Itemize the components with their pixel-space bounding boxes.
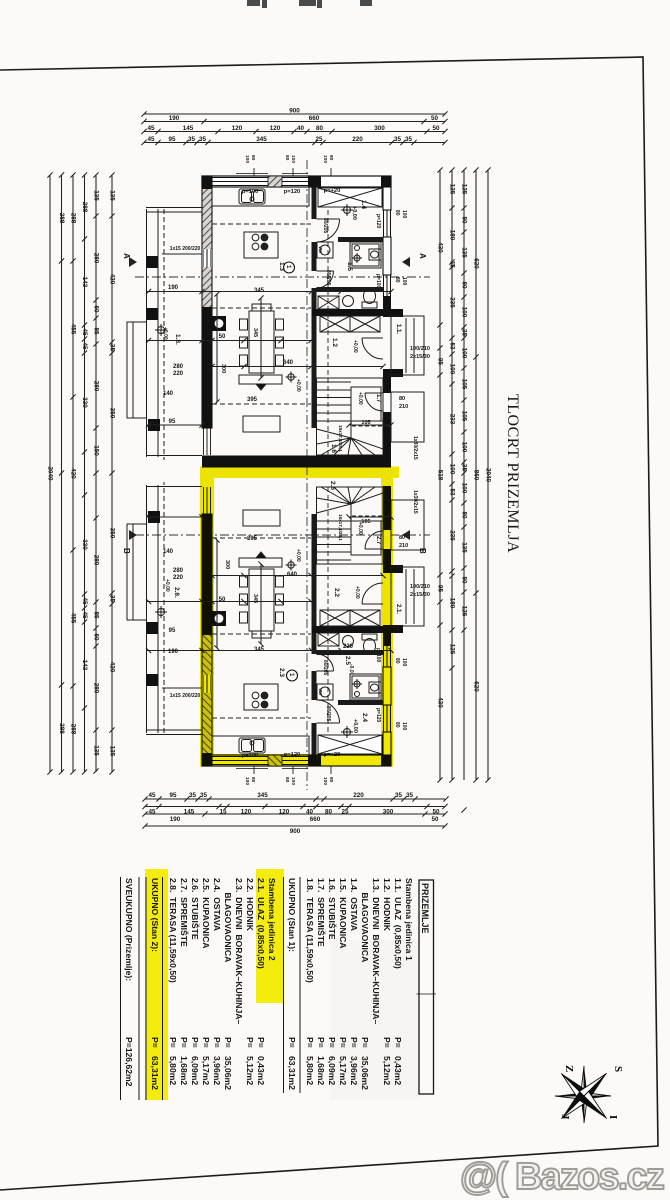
svg-text:VM: VM [318,688,323,695]
svg-text:80/205: 80/205 [325,706,331,722]
svg-text:100: 100 [322,777,328,785]
svg-text:2.4. OSTAVA: 2.4. OSTAVA [212,878,222,931]
svg-text:P=: P= [382,1037,392,1048]
svg-text:80: 80 [394,722,400,728]
svg-text:p=120: p=120 [375,708,381,723]
svg-text:+0,00: +0,00 [352,340,358,353]
svg-text:280: 280 [93,253,100,264]
svg-text:45: 45 [81,597,88,605]
svg-text:1: 1 [285,265,292,269]
svg-text:35: 35 [188,136,196,143]
svg-text:190: 190 [168,285,179,291]
svg-text:p=120: p=120 [284,189,301,195]
svg-text:P=: P= [338,1037,348,1048]
svg-text:430: 430 [437,697,444,708]
svg-text:80: 80 [399,396,405,402]
svg-text:125: 125 [449,644,456,655]
svg-text:35: 35 [199,136,207,143]
svg-text:2.3: 2.3 [278,668,285,677]
svg-text:80: 80 [284,155,290,161]
svg-text:80: 80 [394,658,400,664]
svg-text:2.2. HODNIK: 2.2. HODNIK [245,878,255,932]
svg-text:+0,00: +0,00 [295,379,301,392]
svg-text:518: 518 [437,470,444,481]
svg-text:80: 80 [316,125,324,132]
svg-text:220: 220 [173,575,184,581]
svg-text:80: 80 [394,277,400,283]
svg-text:1.5: 1.5 [346,262,353,271]
svg-text:p=100: p=100 [242,753,259,759]
svg-text:P=: P= [327,1037,337,1048]
svg-text:P=: P= [305,1037,315,1048]
svg-text:SVEUKUPNO (Prizemlje):: SVEUKUPNO (Prizemlje): [124,878,134,981]
svg-text:35: 35 [406,792,414,799]
svg-text:2.6: 2.6 [329,481,336,490]
svg-text:80: 80 [328,155,334,161]
svg-text:455: 455 [70,613,77,624]
svg-text:p=100: p=100 [375,648,381,663]
svg-text:p=120: p=120 [284,752,301,758]
svg-text:900: 900 [290,828,301,835]
svg-text:P=: P= [393,1037,403,1048]
svg-text:S: S [612,1066,624,1072]
svg-text:45: 45 [81,611,88,619]
svg-text:100: 100 [401,277,407,286]
svg-text:860: 860 [473,470,480,481]
svg-text:P=: P= [150,1037,160,1048]
svg-text:288: 288 [58,723,65,734]
svg-text:1x30/2x15: 1x30/2x15 [412,490,418,514]
svg-text:80: 80 [461,281,468,289]
svg-text:1.1. ULAZ (0,85x0,50): 1.1. ULAZ (0,85x0,50) [393,878,403,969]
svg-text:135: 135 [93,190,100,201]
svg-text:1.6. STUBIŠTE: 1.6. STUBIŠTE [327,878,338,940]
svg-text:80: 80 [461,511,468,519]
svg-text:2.1.: 2.1. [395,604,401,614]
svg-text:80: 80 [328,777,334,783]
svg-text:Z: Z [563,1065,575,1072]
svg-text:280: 280 [93,555,100,566]
svg-text:395: 395 [247,397,258,403]
svg-text:235: 235 [449,530,456,541]
svg-text:95: 95 [437,585,444,593]
svg-text:100: 100 [449,464,456,475]
svg-text:280: 280 [173,568,184,574]
svg-text:P=: P= [179,1037,189,1048]
svg-text:100/210: 100/210 [410,346,430,352]
svg-text:100: 100 [401,658,407,667]
svg-text:50: 50 [431,816,439,823]
svg-text:180: 180 [449,230,456,241]
svg-text:190: 190 [170,816,181,823]
svg-text:105: 105 [361,420,370,426]
svg-text:53: 53 [449,488,456,496]
svg-text:P=: P= [168,1037,178,1048]
svg-text:2.7. SPREMIŠTE: 2.7. SPREMIŠTE [179,878,190,947]
svg-text:140: 140 [163,391,174,397]
svg-text:5,17m2: 5,17m2 [338,1056,348,1085]
svg-text:143: 143 [81,277,88,288]
svg-text:p=120: p=120 [375,214,381,229]
svg-text:420: 420 [109,662,116,673]
svg-text:5,17m2: 5,17m2 [201,1056,211,1085]
svg-text:1x30/2x15: 1x30/2x15 [412,436,418,460]
svg-text:2.4: 2.4 [361,713,368,722]
svg-text:BLAGOVAONICA: BLAGOVAONICA [360,878,370,962]
svg-text:J: J [559,1114,571,1120]
svg-text:135: 135 [109,746,116,757]
svg-text:395: 395 [247,536,258,542]
svg-text:420: 420 [70,468,77,479]
svg-text:35: 35 [395,792,403,799]
svg-text:1.7. SPREMIŠTE: 1.7. SPREMIŠTE [316,878,327,947]
svg-text:35: 35 [461,464,468,472]
svg-text:p=+20: p=+20 [324,188,341,194]
svg-text:+0,00: +0,00 [164,579,170,592]
svg-text:Stambena jedinica 2: Stambena jedinica 2 [267,878,277,961]
svg-text:345: 345 [254,647,265,653]
svg-text:105: 105 [461,379,468,390]
svg-text:430: 430 [437,242,444,253]
svg-text:80: 80 [394,210,400,216]
svg-text:125: 125 [449,184,456,195]
svg-text:660: 660 [310,816,321,823]
svg-text:P=: P= [349,1037,359,1048]
svg-text:VM: VM [318,246,323,253]
svg-text:UKUPNO (Stan 2):: UKUPNO (Stan 2): [150,878,160,952]
svg-text:85: 85 [93,611,100,619]
svg-text:5,80m2: 5,80m2 [305,1056,315,1085]
svg-text:53: 53 [449,342,456,350]
svg-text:1.6: 1.6 [330,444,337,453]
svg-text:UKUPNO (Stan 1):: UKUPNO (Stan 1): [287,878,297,952]
svg-text:2.8. TERASA (11,59x0,50): 2.8. TERASA (11,59x0,50) [168,878,178,983]
svg-text:288: 288 [81,202,88,213]
svg-text:220: 220 [173,371,184,377]
svg-text:P=: P= [256,1037,266,1048]
svg-text:210: 210 [399,404,408,410]
svg-text:1x15 200/220: 1x15 200/220 [170,693,201,699]
svg-text:35: 35 [109,595,116,603]
svg-text:95: 95 [169,628,176,634]
svg-text:50: 50 [219,334,226,340]
svg-text:A: A [418,253,427,259]
svg-text:100: 100 [461,307,468,318]
svg-text:1.4: 1.4 [360,200,367,209]
svg-text:1,68m2: 1,68m2 [179,1056,189,1085]
svg-text:2x15/30: 2x15/30 [410,592,430,598]
svg-text:80/205: 80/205 [325,270,331,286]
svg-text:A: A [122,253,131,259]
svg-text:2.1. ULAZ (0,85x0,50): 2.1. ULAZ (0,85x0,50) [256,878,266,969]
svg-text:1.8. TERASA (11,59x0,50): 1.8. TERASA (11,59x0,50) [305,878,315,983]
svg-text:2.2: 2.2 [333,588,340,597]
svg-text:620: 620 [473,258,480,269]
svg-text:235: 235 [449,297,456,308]
svg-text:3,96m2: 3,96m2 [349,1056,359,1085]
svg-text:640: 640 [283,360,294,366]
svg-text:620: 620 [473,681,480,692]
svg-text:6,09m2: 6,09m2 [190,1056,200,1085]
svg-text:95: 95 [168,136,176,143]
svg-text:350: 350 [109,528,116,539]
svg-text:100: 100 [322,155,328,163]
svg-text:1x15 200/220: 1x15 200/220 [170,246,201,252]
svg-text:35: 35 [405,136,413,143]
svg-text:80: 80 [284,777,290,783]
svg-text:2.8.: 2.8. [173,587,180,598]
svg-text:350: 350 [109,408,116,419]
svg-text:190: 190 [168,649,179,655]
svg-text:100: 100 [461,442,468,453]
svg-text:BLAGOVAONICA: BLAGOVAONICA [223,878,233,962]
svg-text:300: 300 [224,560,230,569]
svg-text:45: 45 [81,328,88,336]
svg-text:P=: P= [360,1037,370,1048]
svg-text:45: 45 [147,136,155,143]
svg-text:2.5. KUPAONICA: 2.5. KUPAONICA [201,878,211,949]
svg-text:2x15/30: 2x15/30 [410,354,430,360]
svg-text:95: 95 [169,419,176,425]
svg-text:220: 220 [352,136,363,143]
svg-text:+0,00: +0,00 [162,327,168,340]
svg-text:50: 50 [219,597,226,603]
svg-text:135: 135 [109,190,116,201]
svg-text:35,06m2: 35,06m2 [223,1056,233,1090]
svg-text:420: 420 [109,274,116,285]
svg-text:95: 95 [169,792,177,799]
svg-text:220: 220 [343,644,354,650]
svg-text:5,12m2: 5,12m2 [382,1056,392,1085]
svg-text:2040: 2040 [485,468,492,483]
svg-text:105: 105 [361,519,370,525]
svg-text:80/205: 80/205 [322,660,328,676]
svg-text:100: 100 [401,722,407,731]
svg-text:P=: P= [316,1037,326,1048]
svg-text:+0,00: +0,00 [354,586,360,599]
svg-text:233: 233 [449,414,456,425]
svg-text:100: 100 [290,155,296,163]
svg-text:1.7: 1.7 [375,394,381,403]
svg-text:85: 85 [93,327,100,335]
svg-text:P=: P= [190,1037,200,1048]
svg-text:330: 330 [81,539,88,550]
svg-text:190: 190 [169,115,180,122]
svg-text:345: 345 [252,594,258,603]
svg-text:125: 125 [461,184,468,195]
svg-text:135: 135 [461,247,468,258]
svg-text:135: 135 [461,542,468,553]
svg-text:345: 345 [256,136,267,143]
svg-text:p=100: p=100 [242,189,259,195]
svg-text:P=: P= [245,1037,255,1048]
svg-text:p=+20: p=+20 [324,752,341,758]
svg-text:150: 150 [93,445,100,456]
svg-text:50: 50 [431,115,439,122]
svg-text:80: 80 [461,216,468,224]
svg-text:P=126,62m2: P=126,62m2 [124,1037,134,1087]
svg-text:120: 120 [270,125,281,132]
svg-text:1.4. OSTAVA: 1.4. OSTAVA [349,878,359,931]
svg-text:135: 135 [93,745,100,756]
svg-text:143: 143 [81,660,88,671]
svg-text:80: 80 [399,535,405,541]
svg-text:P=: P= [212,1037,222,1048]
svg-text:@( Bazos.cz: @( Bazos.cz [460,1156,664,1198]
svg-text:140: 140 [163,549,174,555]
svg-text:1: 1 [288,673,295,677]
svg-text:P=: P= [201,1037,211,1048]
svg-text:345: 345 [252,328,258,337]
svg-text:125: 125 [461,606,468,617]
svg-text:Stambena jedinica 1: Stambena jedinica 1 [404,878,414,961]
svg-text:345: 345 [257,792,268,799]
svg-text:45: 45 [147,125,155,132]
svg-text:0,43m2: 0,43m2 [393,1056,403,1085]
svg-text:0,43m2: 0,43m2 [256,1056,266,1085]
svg-text:300: 300 [220,364,226,373]
svg-text:80/205: 80/205 [322,218,328,234]
svg-text:1.3. DNEVNI BORAVAK–KUHINJA–: 1.3. DNEVNI BORAVAK–KUHINJA– [371,878,381,1025]
svg-text:1,68m2: 1,68m2 [316,1056,326,1085]
svg-text:18x17,4/28,1: 18x17,4/28,1 [338,514,343,541]
svg-text:2.3. DNEVNI BORAVAK–KUHINJA–: 2.3. DNEVNI BORAVAK–KUHINJA– [234,878,244,1025]
svg-text:2.7: 2.7 [375,536,381,545]
svg-text:I: I [607,1115,619,1119]
svg-text:100: 100 [461,483,468,494]
svg-text:35: 35 [200,792,208,799]
svg-text:6,09m2: 6,09m2 [327,1056,337,1085]
svg-text:1.1.: 1.1. [395,324,401,334]
svg-text:900: 900 [289,108,300,115]
svg-text:1.8.: 1.8. [174,334,181,345]
svg-text:288: 288 [70,213,77,224]
svg-text:P=: P= [223,1037,233,1048]
svg-text:p=100: p=100 [375,274,381,289]
svg-text:300: 300 [374,125,385,132]
svg-text:80: 80 [461,576,468,584]
svg-text:288: 288 [58,213,65,224]
svg-text:45: 45 [148,792,156,799]
svg-text:B: B [418,548,427,554]
svg-text:280: 280 [173,364,184,370]
svg-text:5,12m2: 5,12m2 [245,1056,255,1085]
svg-text:80: 80 [250,777,256,783]
svg-text:100: 100 [244,777,250,785]
svg-text:100: 100 [290,777,296,785]
svg-text:100: 100 [401,210,407,219]
svg-text:80: 80 [250,155,256,161]
svg-text:18x17,4/28,1: 18x17,4/28,1 [338,425,343,452]
svg-text:35: 35 [109,344,116,352]
svg-text:100: 100 [449,364,456,375]
svg-text:+0,00: +0,00 [357,392,363,405]
svg-text:-0,01: -0,01 [348,664,354,676]
svg-text:25: 25 [315,136,323,143]
svg-text:TLOCRT PRIZEMLJA: TLOCRT PRIZEMLJA [504,394,521,553]
svg-text:35,06m2: 35,06m2 [360,1056,370,1090]
svg-text:60: 60 [93,305,100,313]
svg-text:220: 220 [353,792,364,799]
svg-text:660: 660 [309,115,320,122]
svg-text:220: 220 [343,288,354,294]
svg-text:63,31m2: 63,31m2 [150,1056,160,1090]
svg-text:45: 45 [81,342,88,350]
svg-text:455: 455 [70,324,77,335]
svg-text:+0,00: +0,00 [295,549,301,562]
svg-text:345: 345 [254,288,265,294]
svg-text:35: 35 [394,136,402,143]
svg-text:1.5. KUPAONICA: 1.5. KUPAONICA [338,878,348,949]
svg-text:2.6. STUBIŠTE: 2.6. STUBIŠTE [190,878,201,940]
svg-text:+0,00: +0,00 [352,719,358,733]
svg-text:3,96m2: 3,96m2 [212,1056,222,1085]
svg-text:100: 100 [244,155,250,163]
svg-text:280: 280 [93,683,100,694]
svg-text:330: 330 [81,397,88,408]
svg-text:40: 40 [297,125,305,132]
svg-text:1.2. HODNIK: 1.2. HODNIK [382,878,392,932]
svg-text:180: 180 [449,598,456,609]
svg-text:15: 15 [449,261,456,269]
svg-text:50: 50 [432,125,440,132]
svg-text:288: 288 [70,724,77,735]
svg-text:+0,00: +0,00 [351,206,357,220]
svg-text:640: 640 [287,572,298,578]
svg-text:60: 60 [93,633,100,641]
svg-text:35: 35 [461,329,468,337]
svg-text:145: 145 [183,125,194,132]
svg-text:P=: P= [287,1037,297,1048]
svg-text:100: 100 [461,348,468,359]
svg-text:210: 210 [399,543,408,549]
svg-text:PRIZEMLJE: PRIZEMLJE [420,883,430,934]
svg-text:1.2: 1.2 [331,338,338,347]
svg-text:5,80m2: 5,80m2 [168,1056,178,1085]
svg-text:95: 95 [437,358,444,366]
svg-text:35: 35 [189,792,197,799]
svg-text:63,31m2: 63,31m2 [287,1056,297,1090]
svg-text:2040: 2040 [47,466,54,481]
svg-text:105: 105 [461,411,468,422]
svg-text:280: 280 [93,381,100,392]
svg-text:120: 120 [232,125,243,132]
svg-text:100/210: 100/210 [410,584,430,590]
